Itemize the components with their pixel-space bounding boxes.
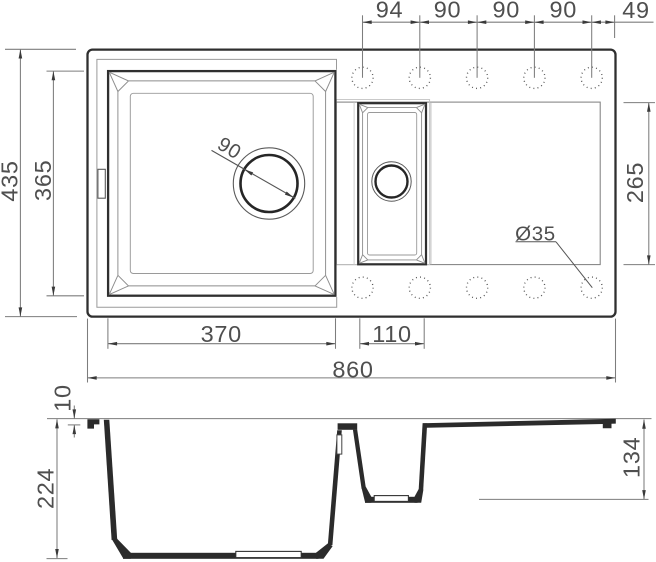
svg-text:90: 90 — [434, 0, 462, 23]
svg-text:370: 370 — [201, 321, 242, 347]
svg-text:365: 365 — [30, 160, 56, 201]
svg-text:10: 10 — [50, 384, 76, 412]
svg-text:265: 265 — [622, 162, 648, 203]
svg-text:90: 90 — [550, 0, 578, 23]
svg-text:110: 110 — [372, 321, 412, 347]
svg-text:94: 94 — [376, 0, 404, 23]
svg-text:134: 134 — [618, 437, 644, 478]
svg-text:90: 90 — [493, 0, 521, 23]
svg-text:860: 860 — [332, 356, 373, 382]
svg-text:435: 435 — [0, 160, 23, 201]
svg-text:49: 49 — [622, 0, 650, 23]
svg-text:224: 224 — [32, 468, 58, 509]
